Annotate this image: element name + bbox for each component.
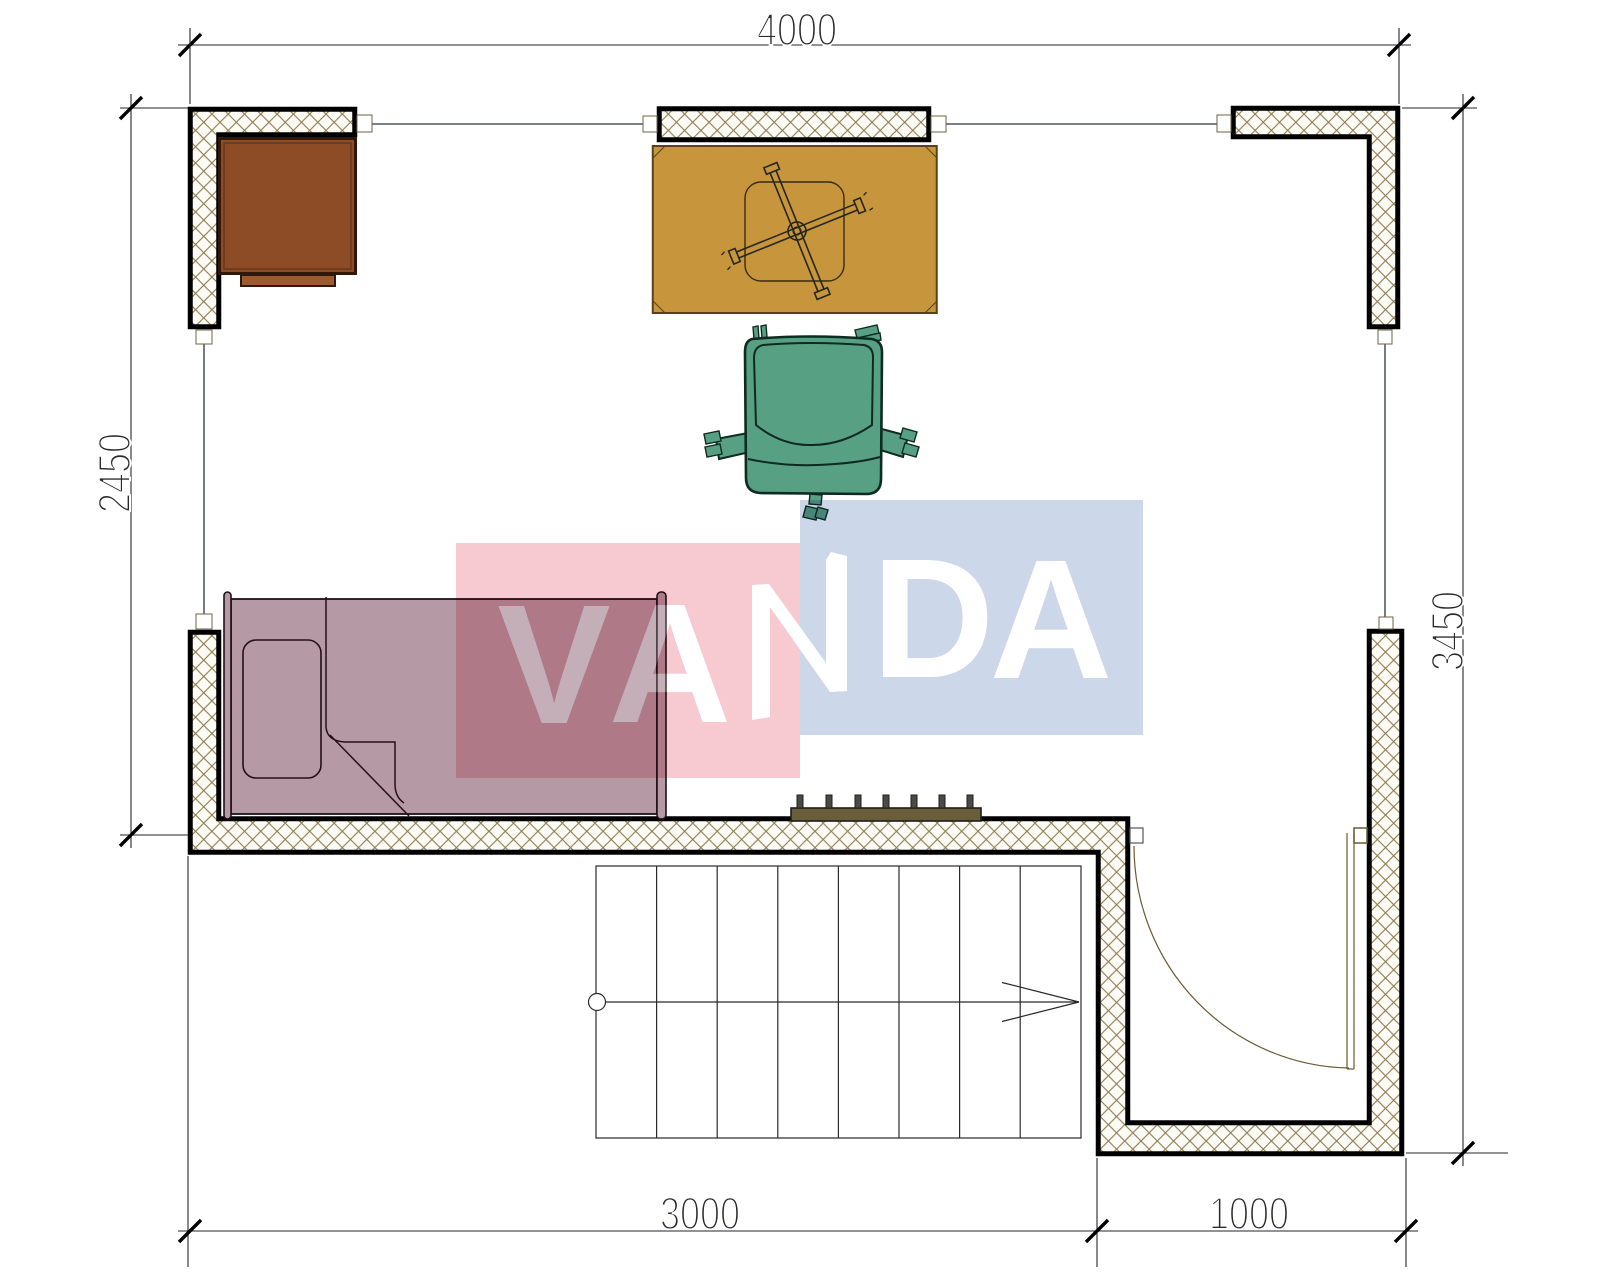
svg-text:3450: 3450 xyxy=(1422,591,1473,671)
svg-text:1000: 1000 xyxy=(1209,1188,1289,1239)
svg-text:A: A xyxy=(609,569,732,759)
svg-text:D: D xyxy=(872,524,995,714)
svg-text:V: V xyxy=(497,570,610,760)
svg-text:3000: 3000 xyxy=(660,1188,740,1239)
svg-text:4000: 4000 xyxy=(757,4,837,55)
svg-text:2450: 2450 xyxy=(89,433,140,513)
svg-text:A: A xyxy=(990,525,1113,715)
